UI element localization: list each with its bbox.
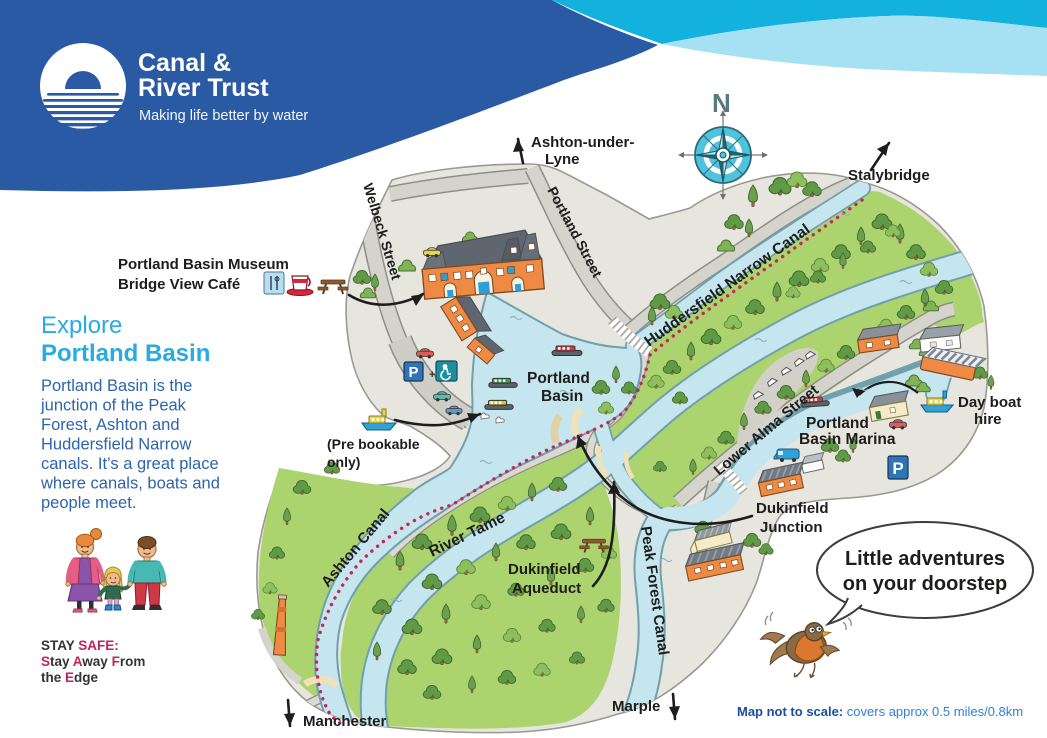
svg-text:Ashton-under-: Ashton-under- bbox=[531, 134, 634, 151]
svg-text:Marple: Marple bbox=[612, 698, 660, 715]
svg-text:Basin Marina: Basin Marina bbox=[799, 431, 896, 448]
svg-text:P: P bbox=[408, 364, 418, 381]
svg-text:where canals, boats and: where canals, boats and bbox=[40, 475, 220, 493]
svg-text:Portland Basin: Portland Basin bbox=[41, 340, 210, 367]
svg-text:Junction: Junction bbox=[760, 519, 823, 536]
svg-text:Canal &: Canal & bbox=[138, 49, 231, 77]
svg-text:Manchester: Manchester bbox=[303, 713, 387, 730]
svg-text:River Trust: River Trust bbox=[138, 74, 269, 102]
svg-text:Portland: Portland bbox=[527, 370, 590, 387]
svg-text:STAY SAFE:: STAY SAFE: bbox=[41, 638, 119, 653]
svg-text:Stay Away From: Stay Away From bbox=[41, 654, 145, 669]
svg-text:Dukinfield: Dukinfield bbox=[756, 500, 829, 517]
svg-text:only): only) bbox=[327, 454, 360, 470]
svg-text:Stalybridge: Stalybridge bbox=[848, 167, 930, 184]
svg-text:Portland Basin Museum: Portland Basin Museum bbox=[118, 256, 289, 273]
svg-text:Portland Basin is the: Portland Basin is the bbox=[41, 377, 192, 395]
svg-text:Explore: Explore bbox=[41, 312, 122, 339]
svg-text:Day boat: Day boat bbox=[958, 394, 1021, 411]
svg-text:N: N bbox=[712, 88, 731, 118]
svg-text:canals. It’s a great place: canals. It’s a great place bbox=[41, 455, 219, 473]
svg-text:(Pre bookable: (Pre bookable bbox=[327, 436, 420, 452]
svg-text:Making life better by water: Making life better by water bbox=[139, 108, 308, 124]
svg-text:Dukinfield: Dukinfield bbox=[508, 561, 581, 578]
svg-text:Lyne: Lyne bbox=[545, 151, 579, 168]
svg-text:Little adventures: Little adventures bbox=[845, 548, 1005, 570]
svg-text:Aqueduct: Aqueduct bbox=[512, 580, 581, 597]
svg-text:junction of the Peak: junction of the Peak bbox=[40, 397, 187, 415]
svg-text:Portland: Portland bbox=[806, 415, 869, 432]
svg-text:Huddersfield Narrow: Huddersfield Narrow bbox=[41, 436, 191, 454]
svg-text:hire: hire bbox=[974, 411, 1002, 428]
svg-text:Forest, Ashton and: Forest, Ashton and bbox=[41, 416, 180, 434]
svg-text:Bridge View Café: Bridge View Café bbox=[118, 276, 240, 293]
svg-text:P: P bbox=[892, 459, 903, 478]
svg-text:the Edge: the Edge bbox=[41, 670, 99, 685]
svg-text:Map not to scale: covers appro: Map not to scale: covers approx 0.5 mile… bbox=[737, 704, 1023, 719]
svg-text:on your doorstep: on your doorstep bbox=[843, 573, 1007, 595]
svg-text:+: + bbox=[429, 369, 435, 381]
svg-text:people meet.: people meet. bbox=[41, 494, 136, 512]
